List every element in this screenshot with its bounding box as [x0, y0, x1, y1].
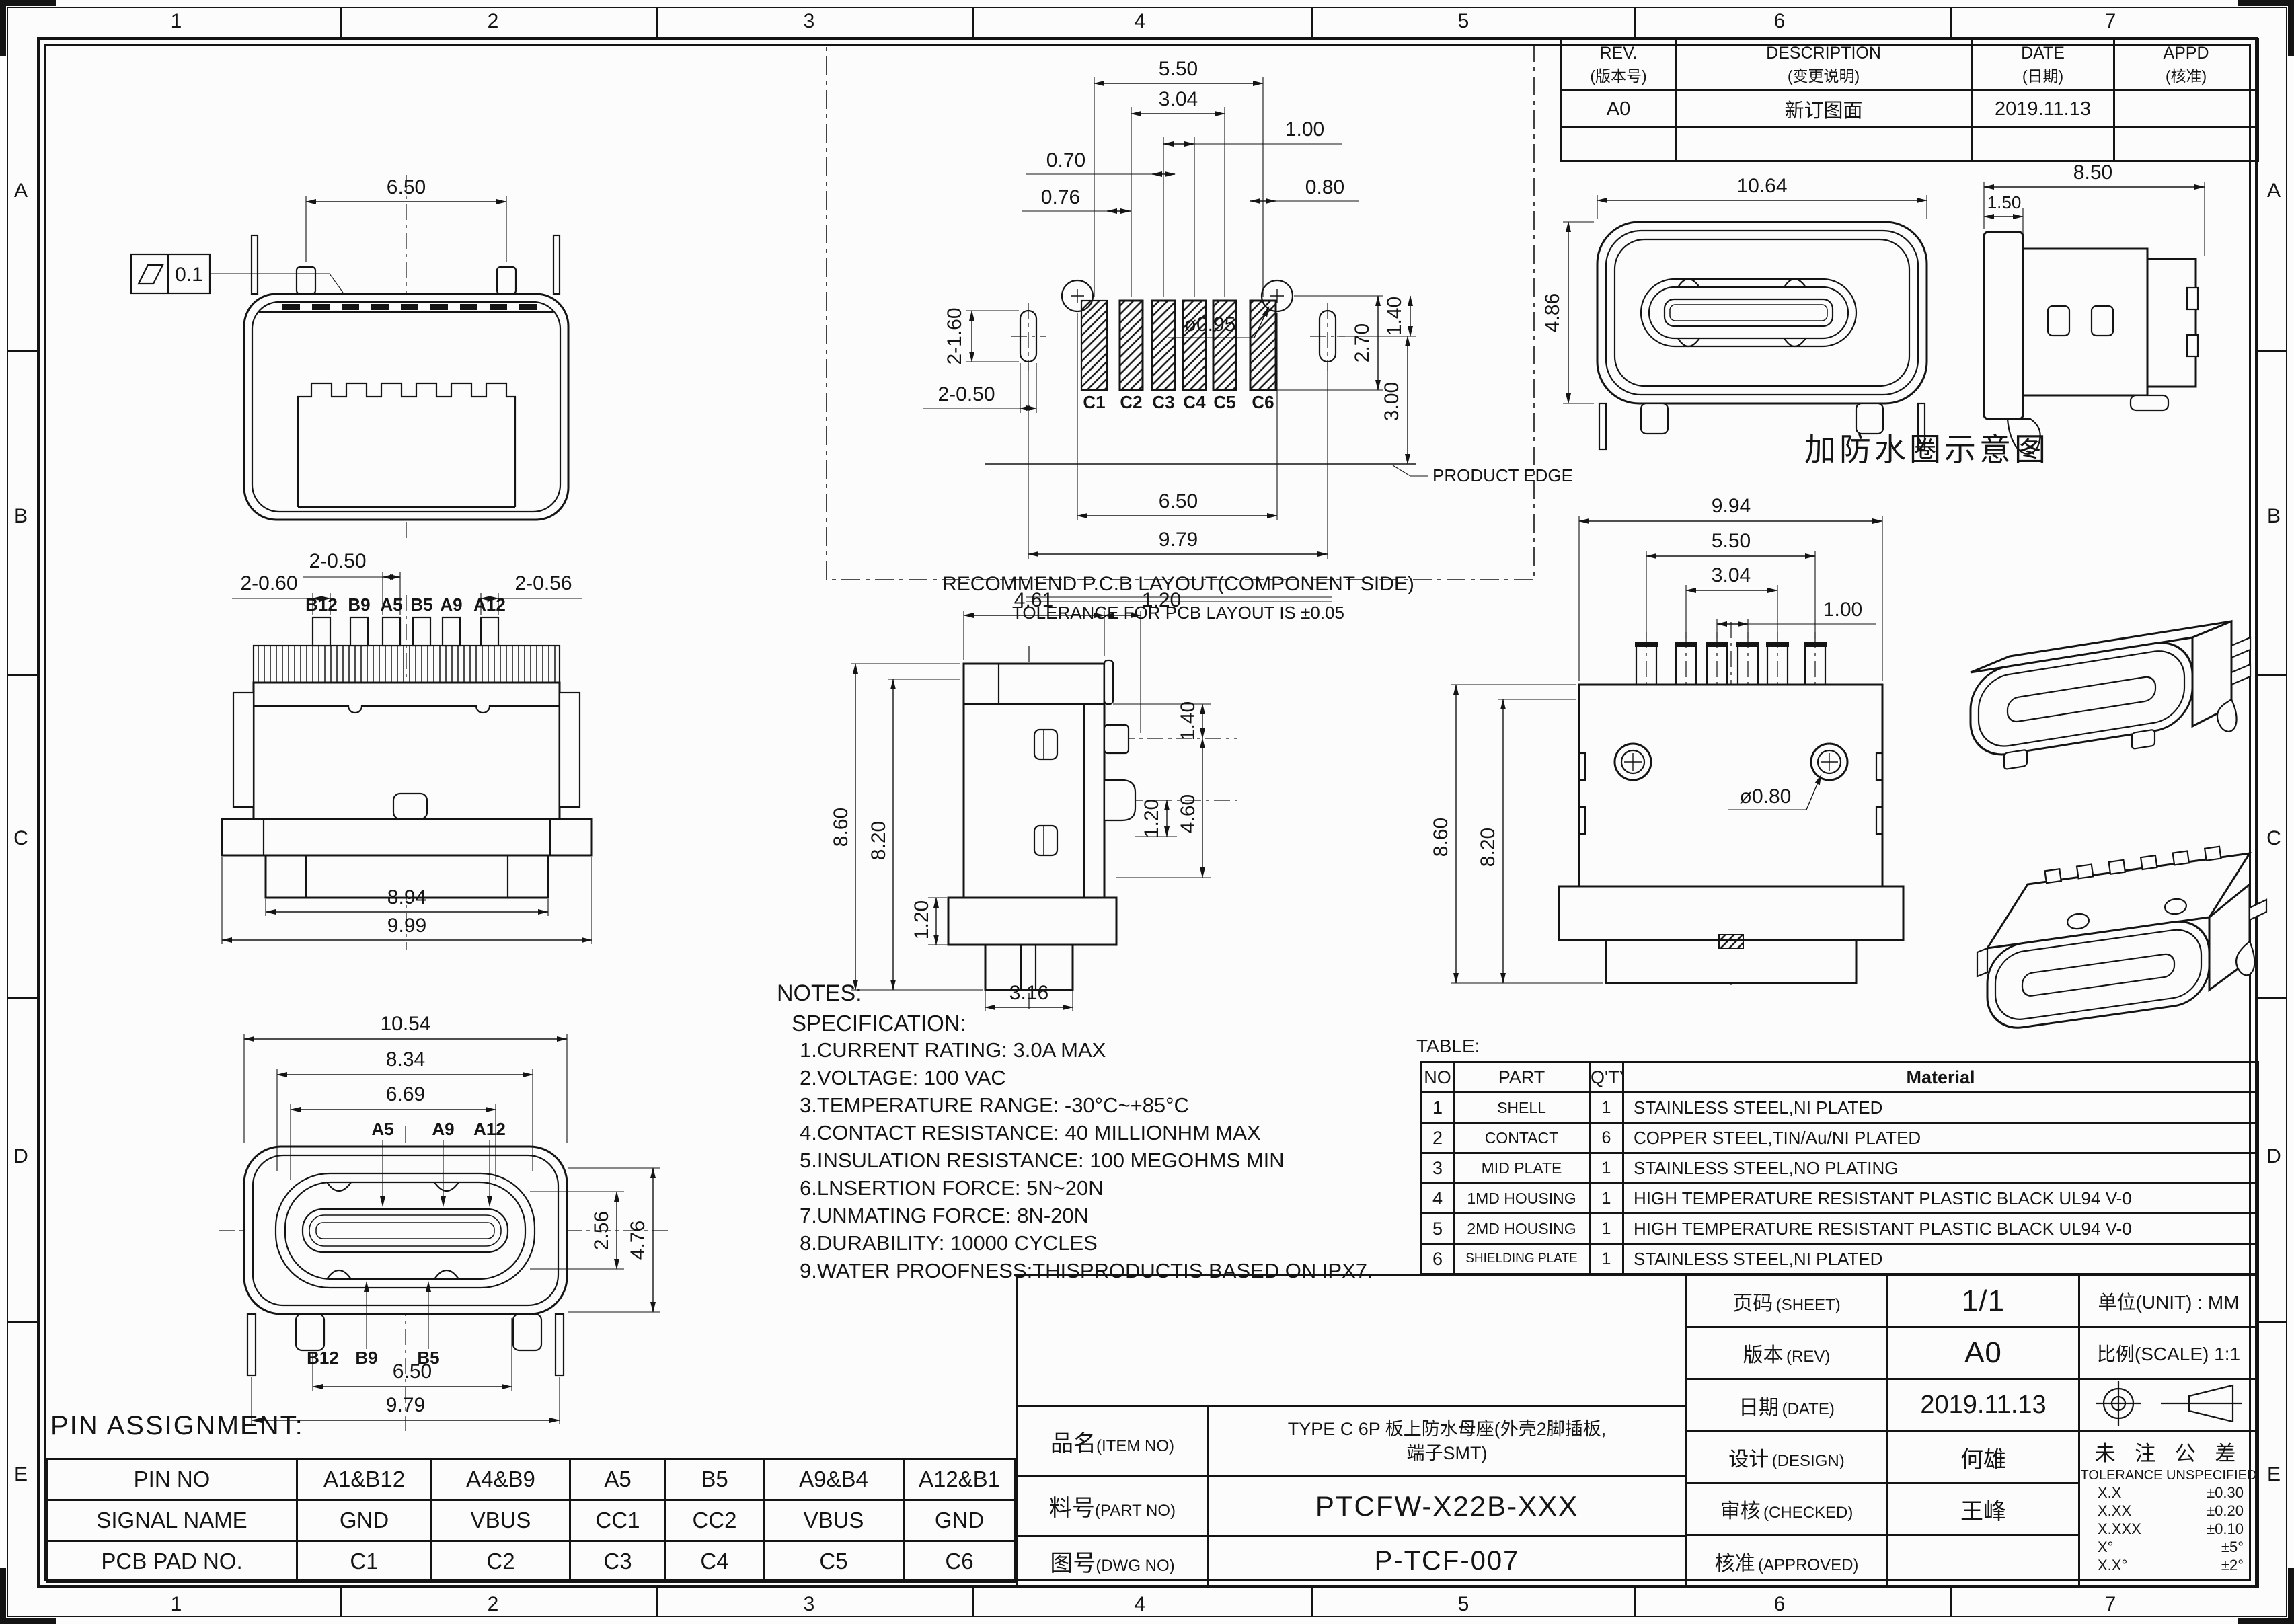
dim: 0.70	[1046, 149, 1085, 171]
corner-mark	[0, 0, 6, 56]
corner-mark	[0, 1568, 6, 1624]
view-waterproof-ring: 10.64 4.86 8.50 1.50 加防水圈示意图	[1540, 155, 2280, 484]
drawing-sheet: 1 2 3 4 5 6 7 1 2 3 4 5 6 7 A B C D E A …	[0, 0, 2294, 1624]
projection-symbol-icon	[2088, 1380, 2250, 1427]
part-no-label: 料号(PART NO)	[1017, 1476, 1209, 1537]
pin-cell: A4&B9	[432, 1459, 570, 1500]
pin-cell: C5	[764, 1541, 904, 1582]
row-label: D	[13, 1145, 28, 1168]
col-label: 5	[1458, 1593, 1469, 1616]
leg	[1641, 403, 1668, 434]
pin-cell: C1	[297, 1541, 432, 1582]
dim: 5.50	[1159, 58, 1198, 80]
pad-label: C5	[1213, 392, 1235, 412]
dim: 1.20	[911, 900, 933, 939]
pin-cell: C3	[570, 1541, 666, 1582]
corner-mark	[2288, 1568, 2294, 1624]
pad-label: C6	[1252, 392, 1274, 412]
dim: 10.64	[1736, 175, 1787, 197]
pin	[556, 1314, 564, 1375]
leg	[296, 1314, 324, 1350]
parts-cell: CONTACT	[1454, 1123, 1590, 1153]
dim: 9.94	[1712, 495, 1751, 517]
dim: 5.50	[1712, 530, 1751, 552]
view-side: 4.61 1.20 8.60 8.20 1.40 1.20 4.60 1.20 …	[834, 578, 1251, 1019]
parts-cell: 1	[1590, 1093, 1623, 1123]
parts-cell: HIGH TEMPERATURE RESISTANT PLASTIC BLACK…	[1623, 1214, 2258, 1244]
pin-label: B5	[410, 594, 432, 615]
col-label: 1	[171, 10, 182, 33]
tolerance-row: X°±5°	[2080, 1538, 2257, 1556]
dim: 8.50	[2073, 161, 2112, 184]
parts-cell: 5	[1422, 1214, 1454, 1244]
note-item: 5.INSULATION RESISTANCE: 100 MEGOHMS MIN	[800, 1147, 1373, 1174]
col-label: 5	[1458, 10, 1469, 33]
dwg-no-label: 图号(DWG NO)	[1017, 1537, 1209, 1586]
pin-cell: B5	[666, 1459, 764, 1500]
ruler-tick	[1311, 8, 1313, 37]
dim: 0.80	[1305, 176, 1344, 198]
pin-label: A5	[371, 1119, 393, 1139]
dim: 2.56	[590, 1211, 613, 1250]
waterproof-caption: 加防水圈示意图	[1804, 432, 2049, 467]
ruler-tick	[1634, 8, 1636, 37]
pin-cell: GND	[297, 1500, 432, 1541]
ruler-tick	[8, 997, 37, 999]
tolerance-title-en: TOLERANCE UNSPECIFIED	[2080, 1468, 2257, 1483]
pin-cell: A5	[570, 1459, 666, 1500]
col-label: 3	[804, 10, 815, 33]
pin-cell: VBUS	[764, 1500, 904, 1541]
tolerance-row: X.X°±2°	[2080, 1556, 2257, 1574]
ruler-tick	[2257, 674, 2286, 676]
note-item: 8.DURABILITY: 10000 CYCLES	[800, 1229, 1373, 1257]
pin-cell: C6	[904, 1541, 1016, 1582]
scale-label: 比例(SCALE) 1:1	[2079, 1327, 2258, 1379]
pin-cell: C4	[666, 1541, 764, 1582]
tolerance-row: X.XXX±0.10	[2080, 1520, 2257, 1538]
parts-cell: 3	[1422, 1153, 1454, 1184]
pin-cell: A9&B4	[764, 1459, 904, 1500]
dim: 9.79	[1159, 529, 1198, 551]
parts-cell: 1	[1590, 1153, 1623, 1184]
side-post	[1104, 725, 1129, 753]
pin-label: A12	[473, 594, 506, 615]
pin-cell: C2	[432, 1541, 570, 1582]
pin-label: A9	[440, 594, 462, 615]
pin-label: A9	[432, 1119, 454, 1139]
dim: 8.20	[1477, 828, 1499, 867]
dim: 3.04	[1159, 88, 1198, 110]
parts-cell: HIGH TEMPERATURE RESISTANT PLASTIC BLACK…	[1623, 1184, 2258, 1214]
dim: 4.60	[1177, 794, 1199, 833]
row-label: E	[14, 1463, 28, 1486]
dim: 0.76	[1041, 186, 1080, 208]
dim: 6.50	[1159, 490, 1198, 512]
rev-header: DATE(日期)	[1972, 40, 2114, 91]
unit-label: 单位(UNIT) : MM	[2079, 1276, 2258, 1327]
item-value: TYPE C 6P 板上防水母座(外壳2脚插板,端子SMT)	[1209, 1407, 1686, 1476]
date-label: 日期 (DATE)	[1686, 1379, 1888, 1432]
corner-mark	[0, 0, 56, 6]
part-no-value: PTCFW-X22B-XXX	[1209, 1476, 1686, 1537]
dim: 2-0.60	[240, 572, 297, 594]
parts-cell: SHELL	[1454, 1093, 1590, 1123]
pad-label: C1	[1083, 392, 1105, 412]
dim: 6.50	[393, 1360, 432, 1383]
ruler-tick	[972, 8, 974, 37]
shell-pin	[252, 235, 258, 294]
ruler-tick	[2257, 997, 2286, 999]
shell-pin	[553, 235, 560, 294]
rev-cell: 新订图面	[1676, 91, 1972, 128]
dim: 3.00	[1381, 382, 1403, 421]
parts-cell: SHIELDING PLATE	[1454, 1244, 1590, 1274]
parts-cell: STAINLESS STEEL,NI PLATED	[1623, 1244, 2258, 1274]
parts-cell: 2	[1422, 1123, 1454, 1153]
ruler-tick	[972, 1587, 974, 1616]
pin	[247, 1314, 256, 1375]
dim: 8.60	[1430, 818, 1452, 857]
dim: 4.86	[1541, 293, 1564, 332]
dim: 1.20	[1141, 799, 1163, 838]
row-label: C	[13, 827, 28, 850]
pin-cell: GND	[904, 1500, 1016, 1541]
col-label: 3	[804, 1593, 815, 1616]
rev-header: REV.(版本号)	[1562, 40, 1676, 91]
ruler-tick	[656, 1587, 658, 1616]
projection-symbol-cell	[2079, 1379, 2258, 1432]
dim: 1.40	[1383, 297, 1406, 336]
leg	[1856, 403, 1883, 434]
pad-label: C4	[1183, 392, 1206, 412]
mount-post	[297, 267, 315, 294]
view-bottom: ø0.80 9.94 5.50 3.04 1.00 8.60 8.20	[1432, 471, 1971, 992]
rev-cell	[2114, 91, 2258, 128]
note-item: 4.CONTACT RESISTANCE: 40 MILLIONHM MAX	[800, 1119, 1373, 1147]
col-label: 4	[1135, 1593, 1146, 1616]
ruler-tick	[2257, 1321, 2286, 1323]
note-item: 6.LNSERTION FORCE: 5N~20N	[800, 1174, 1373, 1202]
dim: 2-0.56	[514, 572, 572, 594]
row-label: B	[14, 505, 28, 528]
ruler-tick	[340, 1587, 342, 1616]
pin-label: A12	[473, 1119, 506, 1139]
parts-cell: 1	[1590, 1244, 1623, 1274]
dim: 2-0.50	[309, 550, 366, 572]
pin-label: B12	[305, 594, 338, 615]
parts-cell: MID PLATE	[1454, 1153, 1590, 1184]
row-label: C	[2266, 827, 2281, 850]
pin-cell: VBUS	[432, 1500, 570, 1541]
weld-mark	[1719, 935, 1743, 948]
corner-mark	[0, 1618, 56, 1624]
tolerance-block: 未 注 公 差 TOLERANCE UNSPECIFIED X.X±0.30 X…	[2079, 1432, 2258, 1588]
pin-table: PIN NOA1&B12A4&B9A5B5A9&B4A12&B1 SIGNAL …	[46, 1458, 1016, 1583]
parts-cell: 1	[1590, 1214, 1623, 1244]
dim: 9.99	[387, 915, 426, 937]
rev-header: DESCRIPTION(变更说明)	[1676, 40, 1972, 91]
rev-cell: A0	[1562, 91, 1676, 128]
sheet-label: 页码 (SHEET)	[1686, 1276, 1888, 1327]
leg	[513, 1314, 541, 1350]
parts-cell: 1MD HOUSING	[1454, 1184, 1590, 1214]
dim: 2-0.50	[938, 383, 995, 405]
notes-block: NOTES: SPECIFICATION: 1.CURRENT RATING: …	[777, 980, 1373, 1284]
view-pcb-layout: C1 C2 C3 C4 C5 C6 5.50 3.04 1.00 0.70 0.…	[824, 42, 1537, 620]
dim: 1.20	[1142, 589, 1181, 611]
view-rear: B12 B9 A5 B5 A9 A12 2-0.50 2-0.60	[195, 538, 599, 952]
mid-plate-tab	[1104, 780, 1135, 820]
col-label: 6	[1774, 1593, 1786, 1616]
dim: 2.70	[1351, 323, 1373, 362]
col-label: 1	[171, 1593, 182, 1616]
approved-label: 核准 (APPROVED)	[1686, 1535, 1888, 1588]
item-label: 品名(ITEM NO)	[1017, 1407, 1209, 1476]
parts-cell: STAINLESS STEEL,NI PLATED	[1623, 1093, 2258, 1123]
pin-cell: SIGNAL NAME	[47, 1500, 297, 1541]
ruler-tick	[1311, 1587, 1313, 1616]
dim: 4.76	[627, 1221, 649, 1260]
mount-post	[497, 267, 516, 294]
pin-cell: CC2	[666, 1500, 764, 1541]
date-value: 2019.11.13	[1888, 1379, 2079, 1432]
view-mating-face: 10.54 8.34 6.69 A5 A9 A12 2.56 4.76 B12 …	[208, 1009, 679, 1439]
pin-cell: CC1	[570, 1500, 666, 1541]
col-label: 2	[488, 10, 499, 33]
rev-header: APPD(核准)	[2114, 40, 2258, 91]
parts-header: NO	[1422, 1062, 1454, 1093]
ruler-tick	[8, 350, 37, 352]
col-label: 7	[2105, 10, 2116, 33]
col-label: 6	[1774, 10, 1786, 33]
dim: 6.69	[386, 1083, 425, 1106]
design-value: 何雄	[1888, 1432, 2079, 1483]
dim: 2-1.60	[944, 307, 966, 364]
dim: 1.00	[1823, 598, 1862, 621]
title-block-left: 品名(ITEM NO) TYPE C 6P 板上防水母座(外壳2脚插板,端子SM…	[1016, 1274, 1687, 1587]
col-label: 4	[1135, 10, 1146, 33]
dwg-no-value: P-TCF-007	[1209, 1537, 1686, 1586]
parts-table: NO PART Q'TY Material 1SHELL1STAINLESS S…	[1420, 1061, 2259, 1275]
dim: 9.79	[386, 1394, 425, 1416]
parts-header: Material	[1623, 1062, 2258, 1093]
dim: ø0.80	[1740, 785, 1792, 808]
tolerance-row: X.XX±0.20	[2080, 1502, 2257, 1520]
checked-label: 审核 (CHECKED)	[1686, 1483, 1888, 1535]
pin-cell: A1&B12	[297, 1459, 432, 1500]
parts-table-label: TABLE:	[1416, 1036, 1480, 1057]
row-label: D	[2266, 1145, 2281, 1168]
note-item: 7.UNMATING FORCE: 8N-20N	[800, 1202, 1373, 1229]
col-label: 7	[2105, 1593, 2116, 1616]
pin-label: B9	[348, 594, 370, 615]
parts-cell: 4	[1422, 1184, 1454, 1214]
approved-value	[1888, 1535, 2079, 1588]
row-label: E	[2267, 1463, 2281, 1486]
oval-pads	[1011, 303, 1345, 371]
tolerance-row: X.X±0.30	[2080, 1483, 2257, 1502]
col-label: 2	[488, 1593, 499, 1616]
view-isometric-bottom	[1977, 780, 2253, 1049]
parts-cell: STAINLESS STEEL,NO PLATING	[1623, 1153, 2258, 1184]
pin-cell: PCB PAD NO.	[47, 1541, 297, 1582]
sheet-value: 1/1	[1888, 1276, 2079, 1327]
dim: 1.50	[1987, 192, 2022, 212]
parts-header: PART	[1454, 1062, 1590, 1093]
corner-mark	[2238, 0, 2294, 6]
ruler-tick	[8, 674, 37, 676]
pad-label: C3	[1152, 392, 1174, 412]
rev-value: A0	[1888, 1327, 2079, 1379]
pin-cell: PIN NO	[47, 1459, 297, 1500]
corner-mark	[2238, 1618, 2294, 1624]
dim: 8.34	[386, 1048, 425, 1071]
dim: 8.60	[830, 808, 852, 847]
dim: 1.00	[1285, 118, 1324, 141]
dim-650: 6.50	[387, 176, 426, 198]
note-item: 3.TEMPERATURE RANGE: -30°C~+85°C	[800, 1091, 1373, 1119]
pin-label: B9	[355, 1348, 377, 1368]
parts-cell: 6	[1422, 1244, 1454, 1274]
parts-cell: 1	[1590, 1184, 1623, 1214]
pad-label: C2	[1120, 392, 1142, 412]
note-item: 1.CURRENT RATING: 3.0A MAX	[800, 1036, 1373, 1064]
flatness-value: 0.1	[175, 264, 203, 286]
shield-seam	[282, 304, 537, 310]
tolerance-title-zh: 未 注 公 差	[2080, 1436, 2257, 1467]
title-block-blank	[1017, 1276, 1686, 1407]
ruler-tick	[656, 8, 658, 37]
dim: 8.94	[387, 886, 426, 908]
revision-table: REV.(版本号) DESCRIPTION(变更说明) DATE(日期) APP…	[1560, 38, 2259, 162]
parts-cell: 2MD HOUSING	[1454, 1214, 1590, 1244]
view-isometric-top	[1957, 565, 2246, 773]
checked-value: 王峰	[1888, 1483, 2079, 1535]
pin-label: A5	[380, 594, 402, 615]
row-label: B	[2267, 505, 2281, 528]
dim: 4.61	[1014, 589, 1053, 611]
dim: 10.54	[380, 1013, 430, 1035]
ruler-tick	[340, 8, 342, 37]
parts-cell: COPPER STEEL,TIN/Au/NI PLATED	[1623, 1123, 2258, 1153]
parts-cell: 1	[1422, 1093, 1454, 1123]
dim: 1.40	[1177, 701, 1199, 740]
ruler-tick	[1634, 1587, 1636, 1616]
dim: 3.16	[1009, 982, 1048, 1004]
note-item: 2.VOLTAGE: 100 VAC	[800, 1064, 1373, 1091]
dim: 3.04	[1712, 564, 1751, 586]
view-front-top-left: 6.50 0.1	[114, 134, 592, 551]
row-label: A	[14, 180, 28, 202]
ruler-tick	[1950, 8, 1952, 37]
pin	[1599, 403, 1606, 449]
rev-cell: 2019.11.13	[1972, 91, 2114, 128]
parts-header: Q'TY	[1590, 1062, 1623, 1093]
dim: ø0.95	[1184, 313, 1236, 336]
dim: 8.20	[868, 821, 890, 860]
title-block-right: 页码 (SHEET) 1/1 单位(UNIT) : MM 版本 (REV) A0…	[1685, 1274, 2259, 1588]
parts-cell: 6	[1590, 1123, 1623, 1153]
ruler-tick	[1950, 1587, 1952, 1616]
pin-label: B12	[307, 1348, 339, 1368]
design-label: 设计 (DESIGN)	[1686, 1432, 1888, 1483]
corner-mark	[2288, 0, 2294, 56]
pcb-pads	[1081, 301, 1276, 390]
ruler-tick	[8, 1321, 37, 1323]
rev-label: 版本 (REV)	[1686, 1327, 1888, 1379]
pin-cell: A12&B1	[904, 1459, 1016, 1500]
contact-pins	[313, 617, 498, 646]
